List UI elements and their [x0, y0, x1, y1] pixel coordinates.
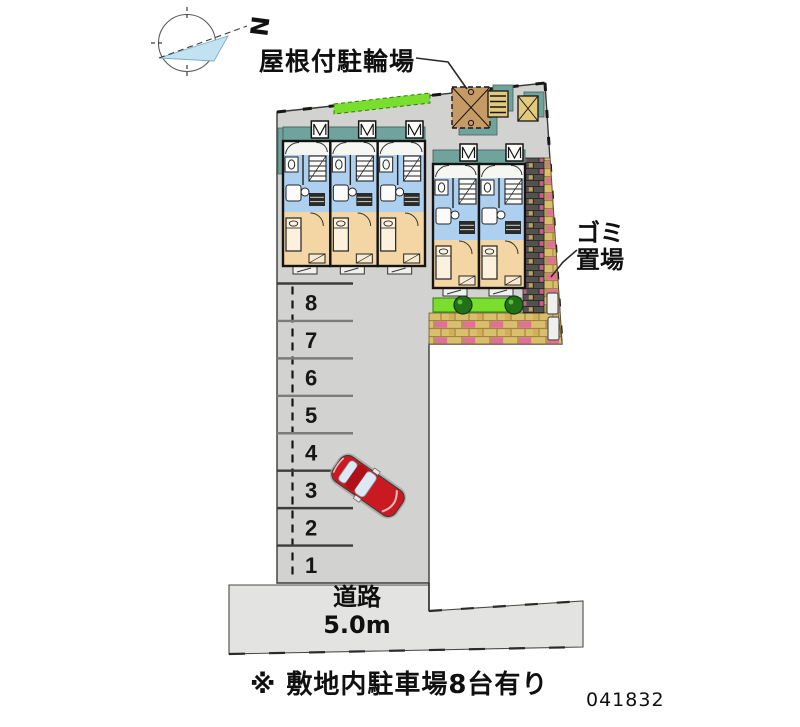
kitchen-counter — [309, 193, 325, 206]
bed-icon — [286, 218, 301, 251]
plan-id: 041832 — [586, 689, 665, 711]
parking-space-number: 4 — [305, 440, 318, 465]
bathtub — [286, 185, 301, 201]
bed-icon — [482, 246, 497, 279]
kitchen-counter — [404, 193, 420, 206]
sink-icon — [348, 188, 356, 196]
bathtub — [333, 185, 348, 201]
unit-entry — [283, 141, 330, 155]
toilet-room — [435, 180, 448, 195]
building-left-units — [278, 121, 425, 274]
bathtub — [381, 185, 396, 201]
sink-icon — [301, 188, 309, 196]
parking-space-number: 2 — [305, 515, 317, 540]
parking-space-number: 8 — [305, 291, 317, 316]
leader-bicycle-label — [416, 58, 467, 89]
brick-paving-bottom — [429, 313, 562, 344]
storage-box — [518, 92, 544, 121]
unit-entry — [433, 164, 479, 178]
kitchen-counter — [505, 221, 521, 234]
parking-space-number: 7 — [305, 328, 317, 353]
north-letter: N — [244, 14, 274, 37]
compass-north-icon: N — [151, 7, 274, 79]
building-right-units — [433, 144, 525, 296]
parking-space-number: 1 — [305, 553, 317, 578]
bathtub — [482, 208, 497, 224]
parking-space-number: 3 — [305, 478, 317, 503]
parking-space-number: 5 — [305, 403, 317, 428]
tree-icon — [454, 296, 472, 314]
toilet-room — [481, 180, 494, 195]
bed-icon — [381, 218, 396, 251]
sink-icon — [497, 211, 505, 219]
unit-entry — [479, 164, 525, 178]
bathtub — [436, 208, 451, 224]
unit-entry — [378, 141, 425, 155]
toilet-room — [285, 157, 298, 172]
sink-icon — [451, 211, 459, 219]
parking-note: ※ 敷地内駐車場8台有り — [250, 664, 548, 701]
kitchen-counter — [356, 193, 372, 206]
site-plan-page: 87654321 N 屋根付駐 — [0, 0, 800, 727]
bed-icon — [333, 218, 348, 251]
toilet-room — [332, 157, 345, 172]
roof-eave-strip — [283, 127, 425, 141]
tree-icon — [505, 296, 523, 314]
parking-space-number: 6 — [305, 366, 317, 391]
kitchen-counter — [459, 221, 475, 234]
unit-entry — [330, 141, 377, 155]
road-label: 道路 5.0m — [296, 583, 418, 640]
toilet-room — [380, 157, 393, 172]
bed-icon — [436, 246, 451, 279]
sink-icon — [396, 188, 404, 196]
bicycle-parking-label: 屋根付駐輪場 — [259, 42, 415, 78]
garbage-area-label: ゴミ 置場 — [576, 220, 624, 274]
